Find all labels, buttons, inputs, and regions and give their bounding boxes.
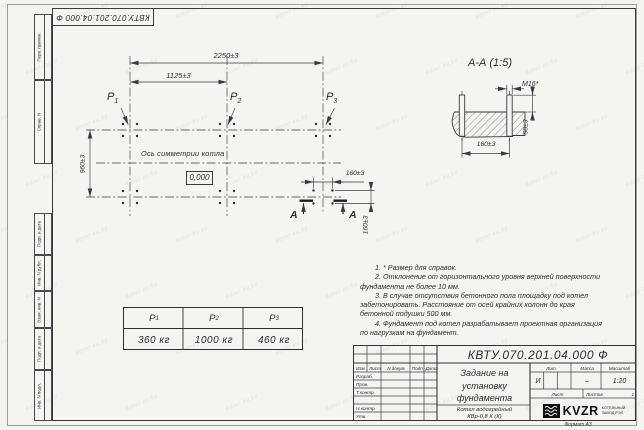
tb-col-podp: Подп. [411,364,425,373]
loads-value-p2: 1000 кг [184,329,244,351]
section-letter-right: А [349,209,357,221]
company-name: KVZR [563,404,599,418]
tb-mass-label: Масса [572,364,602,373]
drawing-sheet: kotel-kv.kzkotel-kv.kzkotel-kv.kzkotel-k… [0,0,644,430]
loads-header-p2: P2 [184,308,244,329]
tb-product: Котел водогрейный КВр-0,8 К (К) [439,407,530,421]
loads-value-p3: 460 кг [244,329,304,351]
tb-col-list: Лист [368,364,382,373]
tb-lit-label: Лит. [531,364,572,373]
tb-row-tkontr: Т.контр. [356,389,375,397]
loads-value-p1: 360 кг [124,329,184,351]
tb-mass-value: – [572,373,602,390]
notes-block: 1. * Размер для справок. 2. Отклонение о… [360,263,602,337]
plan-load-label-p3: P3 [326,91,337,105]
tb-sheets: Листов 1 [586,390,634,399]
tb-scale-value: 1:20 [602,373,637,390]
company-subtitle: КОТЕЛЬНЫЙ ЗАВОД РЭП [602,406,626,415]
section-title: А-А (1:5) [450,57,530,69]
plan-dim-half: 1125±3 [150,71,207,80]
plan-elevation-mark: 0,000 [186,171,213,185]
note-3: 3. В случае отсутствия бетонного пола пл… [360,291,602,319]
plan-axis-label: Ось симметрии котла [141,149,224,158]
tb-lit-value: И [531,373,545,390]
plan-dim-bolt-x: 160±3 [342,170,368,177]
section-dim-spacing: 160±3 [468,141,504,148]
tb-sheet-label: Лист [531,390,584,399]
kvzr-emblem-icon [543,404,560,418]
plan-load-label-p2: P2 [230,91,241,105]
format-label: Формат А3 [546,422,610,428]
loads-header-p1: P1 [124,308,184,329]
tb-scale-label: Масштаб [602,364,637,373]
tb-row-prov: Пров. [356,381,368,389]
tb-row-razrab: Разраб. [356,373,373,381]
note-2: 2. Отклонение от горизонтального уровня … [360,272,602,291]
plan-dim-overall: 2250±3 [196,51,256,60]
title-block: Изм. Лист N докум. Подп. Дата Разраб. Пр… [353,345,636,421]
plan-load-label-p1: P1 [107,91,118,105]
tb-col-izm: Изм. [354,364,368,373]
section-letter-left: А [290,209,298,221]
tb-col-data: Дата [425,364,438,373]
company-logo: KVZR КОТЕЛЬНЫЙ ЗАВОД РЭП [533,400,635,421]
loads-header-p3: P3 [244,308,304,329]
tb-row-nkontr: Н.контр. [356,405,376,413]
plan-elevation-value: 0,000 [189,173,209,182]
section-thread-label: М16* [522,81,546,88]
tb-doc-number: КВТУ.070.201.04.000 Ф [441,347,635,363]
tb-title: Задание на установку фундамента [439,367,530,405]
note-4: 4. Фундамент под котел разрабатывает про… [360,319,602,338]
loads-table: P1 P2 P3 360 кг 1000 кг 460 кг [123,307,303,350]
tb-row-utv: Утв. [356,413,367,421]
note-1: 1. * Размер для справок. [360,263,602,272]
tb-col-ndocum: N докум. [382,364,411,373]
